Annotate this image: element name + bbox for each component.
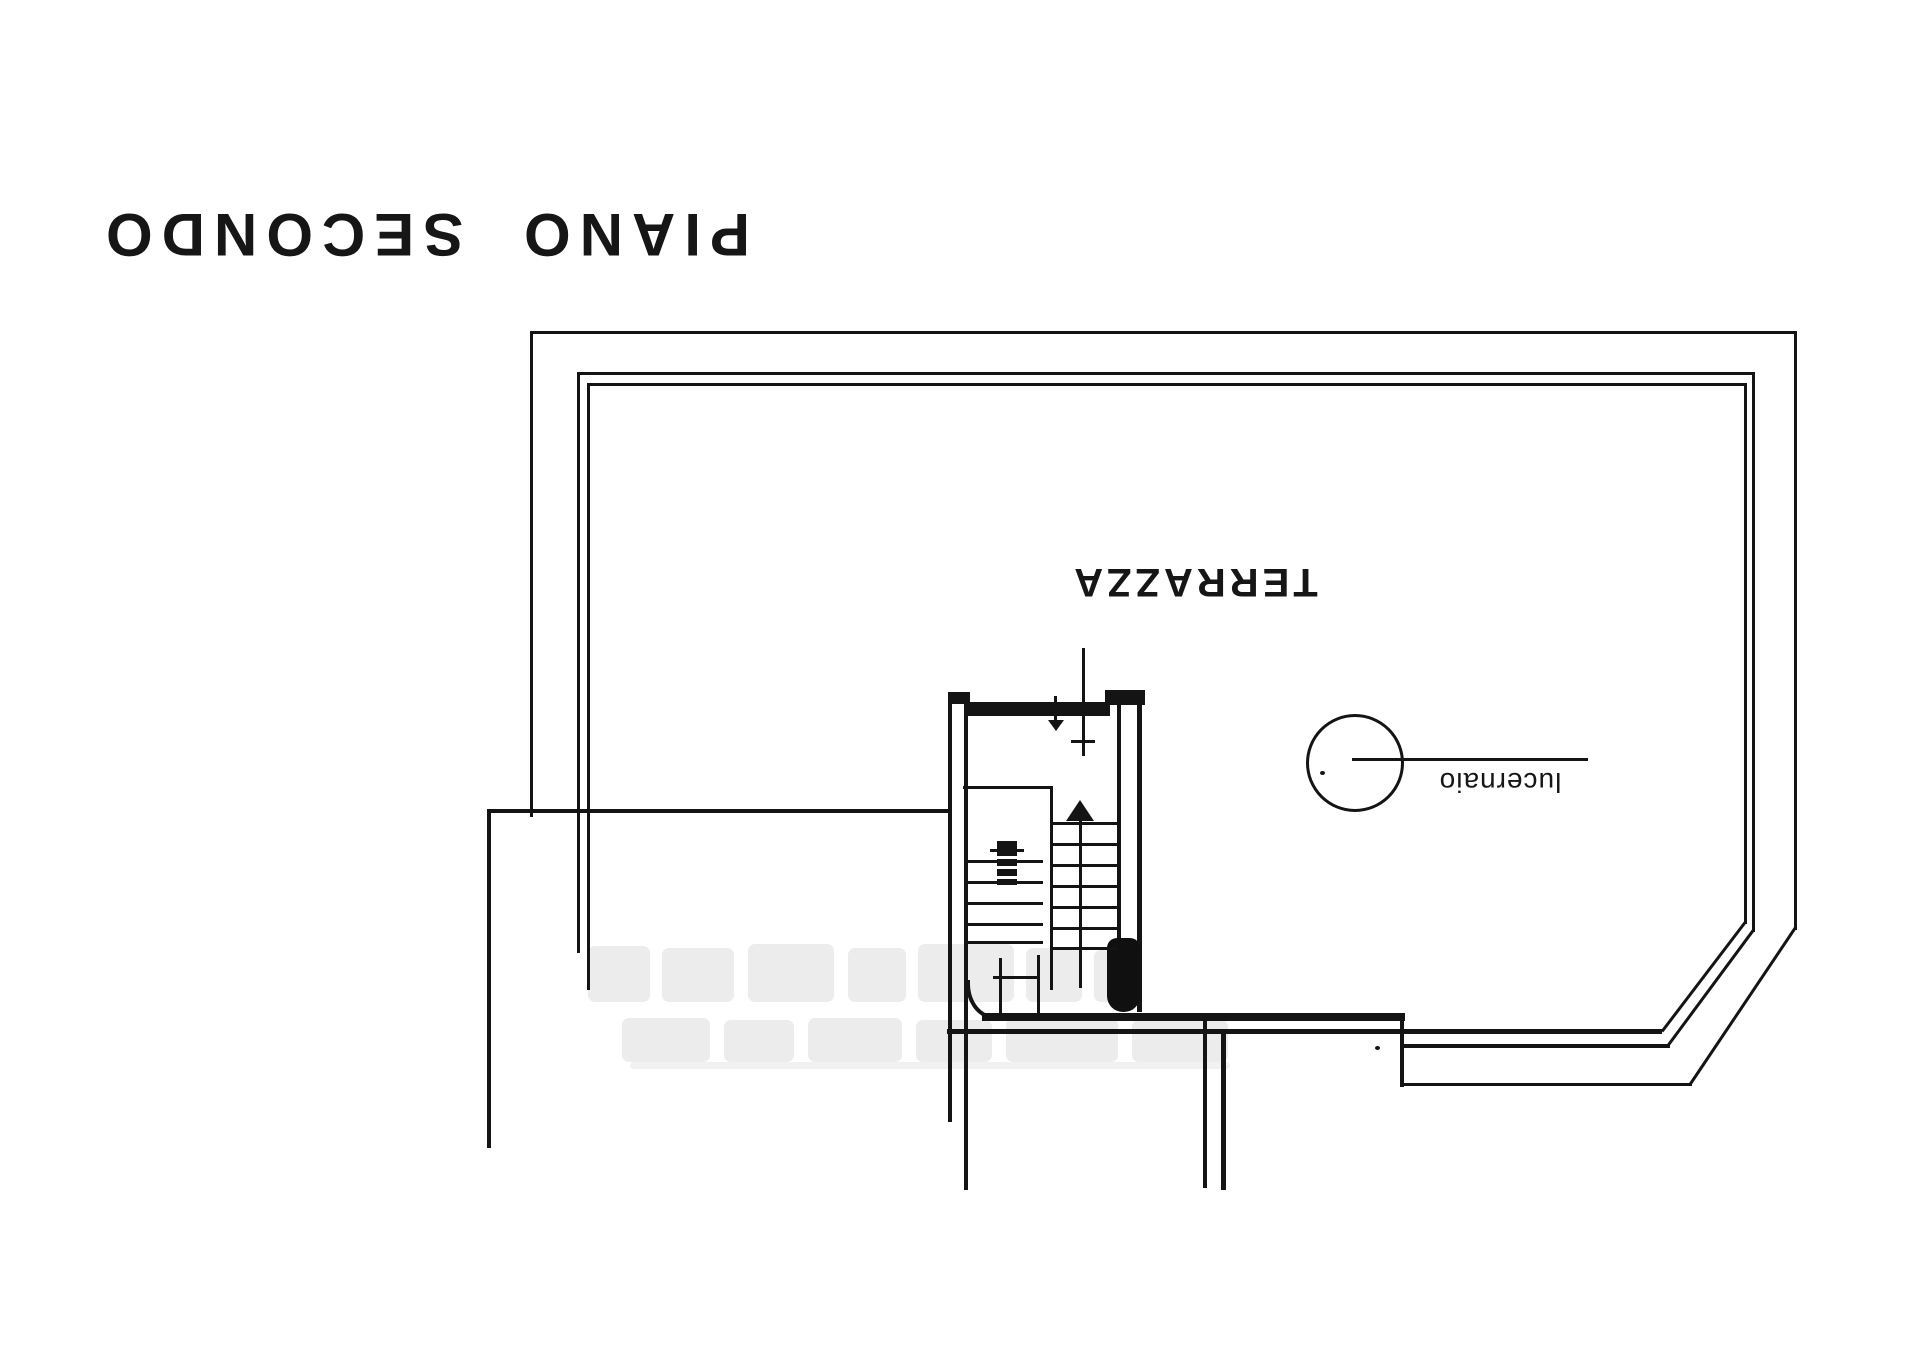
corridor-right-wall-outer bbox=[1221, 1030, 1226, 1190]
watermark-block bbox=[1026, 948, 1082, 1002]
outer-boundary-top bbox=[530, 331, 1797, 334]
watermark-block bbox=[916, 1020, 992, 1062]
parapet-step-vertical bbox=[1400, 1013, 1404, 1087]
watermark-underline bbox=[630, 1062, 1230, 1069]
left-wing-left-wall bbox=[487, 809, 491, 1148]
stair-tread bbox=[1053, 906, 1117, 909]
stair-bottom-wall bbox=[982, 1013, 1405, 1021]
parapet-bottom-inner bbox=[947, 1029, 1662, 1034]
stair-tread bbox=[967, 941, 1043, 944]
stair-break-tick bbox=[999, 969, 1002, 986]
watermark-block bbox=[724, 1020, 794, 1062]
door-arrow-icon bbox=[1048, 720, 1064, 731]
stair-tread bbox=[967, 923, 1043, 926]
stair-tread bbox=[1053, 843, 1117, 846]
skylight-dot bbox=[1320, 771, 1325, 775]
stair-tread bbox=[1053, 822, 1117, 825]
parapet-chamfer-outer bbox=[1667, 930, 1754, 1047]
winder-tread-line bbox=[1037, 955, 1040, 1015]
watermark-block bbox=[622, 1018, 710, 1062]
watermark-block bbox=[748, 944, 834, 1002]
floor-plan-canvas: PIANO SECONDO TERRAZZA lucernaio bbox=[0, 0, 1920, 1358]
stair-bottom-left-curve bbox=[966, 980, 998, 1020]
outer-boundary-chamfer bbox=[1689, 927, 1797, 1086]
corridor-right-wall-inner bbox=[1203, 1016, 1207, 1188]
outer-boundary-right bbox=[1794, 331, 1797, 930]
terrace-label: TERRAZZA bbox=[1060, 554, 1328, 610]
newel-hatch-gap bbox=[997, 876, 1017, 879]
parapet-top-inner bbox=[587, 383, 1747, 386]
skylight-label: lucernaio bbox=[1402, 762, 1598, 802]
stair-tread bbox=[1053, 885, 1117, 888]
stair-left-wall-inner bbox=[964, 702, 968, 1190]
stair-center-divider bbox=[1050, 788, 1053, 990]
newel-hatch-gap bbox=[997, 866, 1017, 869]
stair-right-wall-inner bbox=[1117, 695, 1121, 940]
parapet-right-inner bbox=[1744, 383, 1747, 924]
outer-boundary-bottom bbox=[1402, 1083, 1692, 1086]
skylight-leader-line bbox=[1352, 758, 1588, 761]
outer-boundary-left bbox=[530, 331, 533, 817]
winder-tread-line bbox=[999, 958, 1002, 1015]
parapet-top-outer bbox=[577, 372, 1755, 375]
skylight-circle bbox=[1306, 714, 1404, 812]
stair-left-wall-outer bbox=[948, 692, 952, 1122]
newel-cross-tick bbox=[990, 849, 1024, 852]
stair-top-wall bbox=[966, 702, 1110, 716]
stair-tread bbox=[1053, 927, 1117, 930]
parapet-right-outer bbox=[1752, 372, 1755, 932]
stair-tread bbox=[967, 902, 1043, 905]
parapet-bottom-outer bbox=[1400, 1044, 1670, 1048]
stair-tread bbox=[1053, 864, 1117, 867]
plan-title: PIANO SECONDO bbox=[130, 192, 750, 276]
stair-partition-wall bbox=[963, 786, 1053, 789]
watermark-block bbox=[662, 948, 734, 1002]
left-wing-top-wall bbox=[487, 809, 952, 813]
watermark-block bbox=[808, 1018, 902, 1062]
watermark-block bbox=[1006, 1018, 1118, 1062]
stray-dot bbox=[1375, 1046, 1380, 1050]
parapet-left-inner bbox=[587, 383, 590, 990]
newel-hatch-gap bbox=[997, 856, 1017, 859]
stair-tread bbox=[1053, 947, 1117, 950]
section-line-tick bbox=[1071, 740, 1095, 743]
watermark-block bbox=[848, 948, 906, 1002]
watermark-block bbox=[1132, 1020, 1228, 1062]
parapet-left-outer bbox=[577, 372, 580, 953]
watermark-block bbox=[588, 946, 650, 1002]
